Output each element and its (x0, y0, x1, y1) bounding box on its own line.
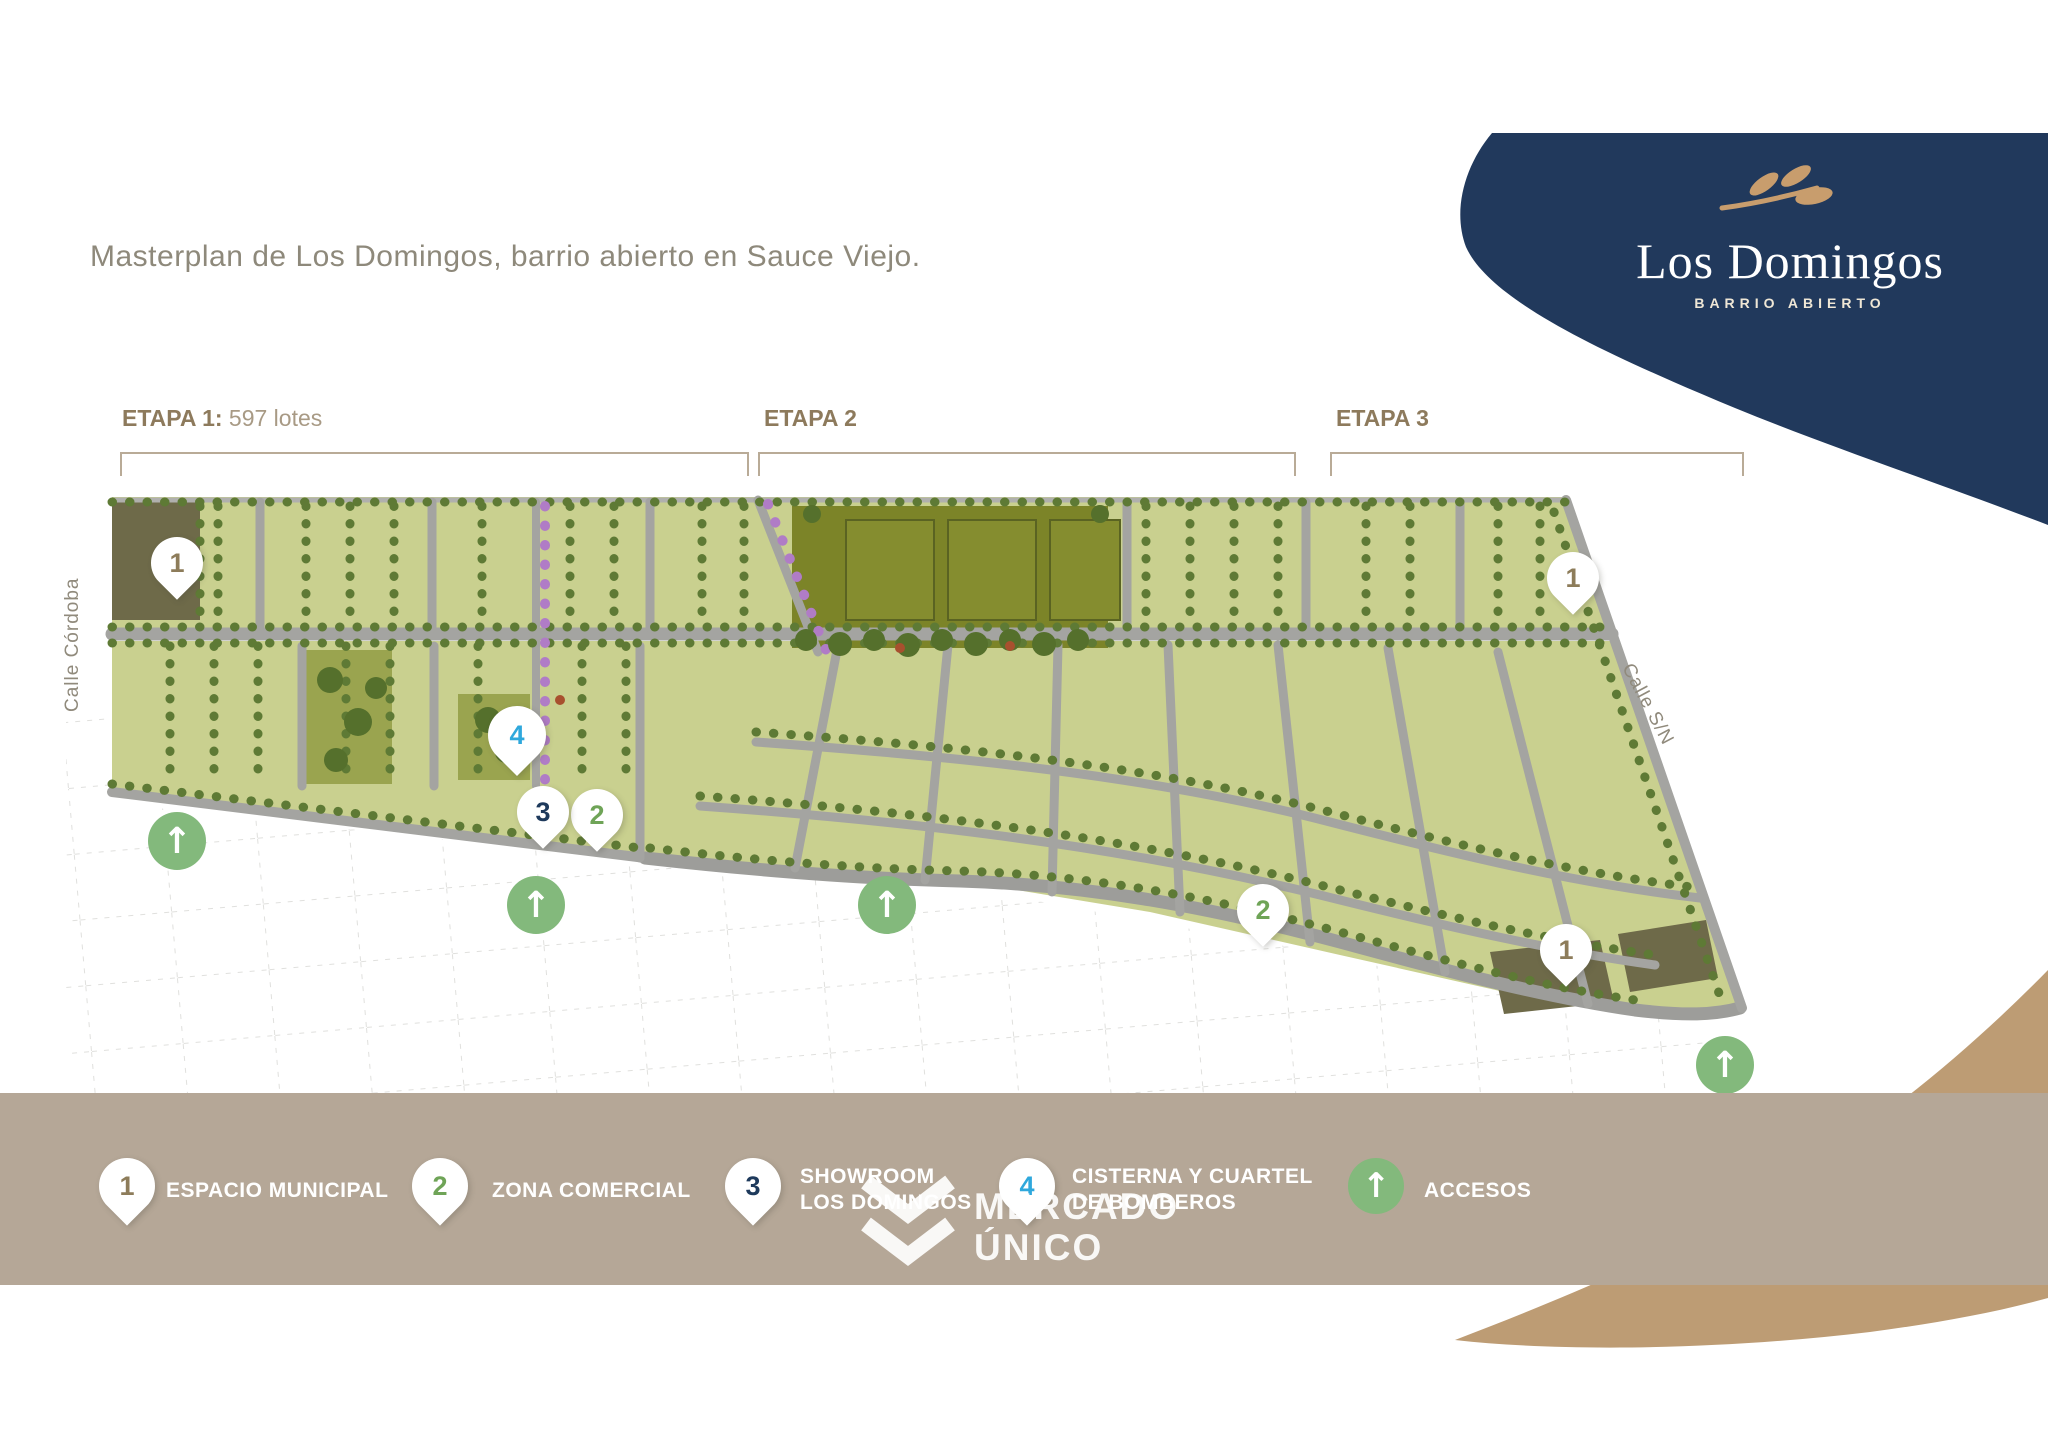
legend-pin-3: 3 (713, 1146, 792, 1225)
map-pin-zona-comercial-1: 2 (560, 778, 634, 852)
legend-access-arrow-icon: ↑ (1348, 1158, 1404, 1214)
pin-number: 1 (1547, 552, 1599, 604)
map-pin-cisterna: 4 (476, 694, 558, 776)
mercado-unico-chevron-icon (860, 1172, 956, 1276)
pin-number: 2 (571, 789, 623, 841)
pin-number: 2 (1237, 884, 1289, 936)
legend-label-zona-comercial: ZONA COMERCIAL (492, 1178, 691, 1204)
pin-number: 1 (151, 537, 203, 589)
access-arrow-icon: ↑ (507, 876, 565, 934)
map-pin-showroom: 3 (506, 775, 580, 849)
stage1-title: ETAPA 1: (122, 405, 223, 431)
pin-number: 1 (99, 1158, 155, 1214)
map-pin-espacio-municipal-3: 1 (1529, 913, 1603, 987)
pin-number: 4 (488, 706, 546, 764)
page-title: Masterplan de Los Domingos, barrio abier… (90, 240, 921, 274)
stage2-title: ETAPA 2 (764, 405, 857, 431)
logo-name: Los Domingos (1570, 232, 2010, 290)
stage3-title: ETAPA 3 (1336, 405, 1429, 431)
stage2-label: ETAPA 2 (764, 405, 857, 432)
pin-number: 1 (1540, 924, 1592, 976)
masterplan-flyer: Masterplan de Los Domingos, barrio abier… (0, 0, 2048, 1448)
watermark-brand: MERCADO ÚNICO (974, 1186, 1179, 1269)
stage3-label: ETAPA 3 (1336, 405, 1429, 432)
logo-subtitle: BARRIO ABIERTO (1570, 295, 2010, 311)
pin-number: 3 (725, 1158, 781, 1214)
legend-label-espacio-municipal: ESPACIO MUNICIPAL (166, 1178, 388, 1204)
access-arrow-icon: ↑ (1696, 1036, 1754, 1094)
stage3-bracket (1330, 452, 1744, 476)
legend-pin-2: 2 (400, 1146, 479, 1225)
stage2-bracket (758, 452, 1296, 476)
map-pin-espacio-municipal-1: 1 (140, 526, 214, 600)
legend-label-accesos: ACCESOS (1424, 1178, 1531, 1204)
map-pin-espacio-municipal-2: 1 (1536, 541, 1610, 615)
pin-number: 2 (412, 1158, 468, 1214)
stage1-label: ETAPA 1: 597 lotes (122, 405, 322, 432)
map-pin-zona-comercial-2: 2 (1226, 873, 1300, 947)
watermark: MERCADO ÚNICO (860, 1172, 1179, 1276)
stage1-bracket (120, 452, 749, 476)
pin-number: 3 (517, 786, 569, 838)
legend-pin-1: 1 (87, 1146, 166, 1225)
street-label-calle-cordoba: Calle Córdoba (62, 552, 84, 712)
access-arrow-icon: ↑ (858, 876, 916, 934)
stage1-detail: 597 lotes (229, 405, 322, 431)
access-arrow-icon: ↑ (148, 812, 206, 870)
